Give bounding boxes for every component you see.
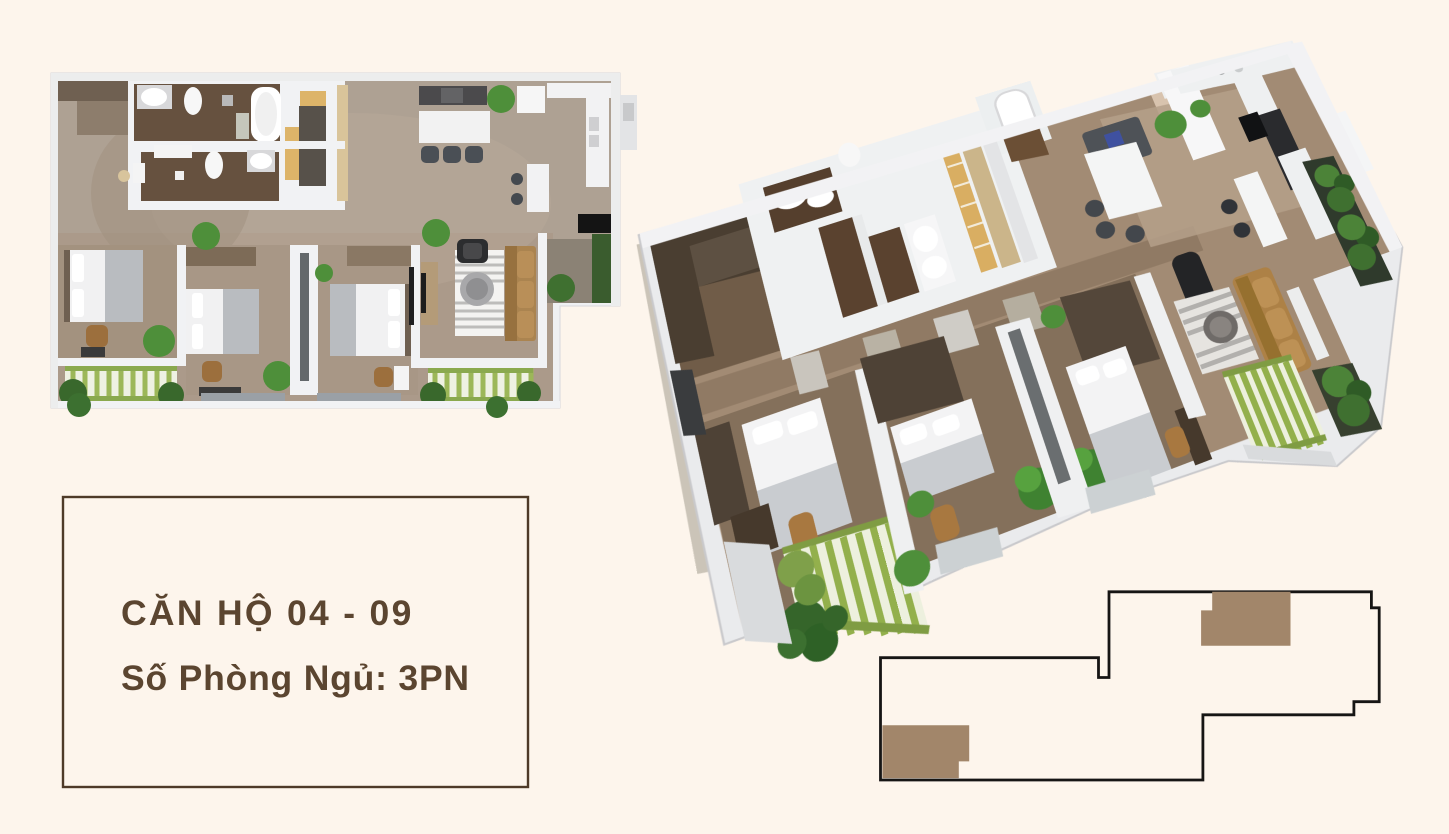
svg-text:CĂN HỘ 04 - 09: CĂN HỘ 04 - 09 [121, 593, 414, 633]
svg-text:Số Phòng Ngủ: 3PN: Số Phòng Ngủ: 3PN [121, 658, 470, 698]
